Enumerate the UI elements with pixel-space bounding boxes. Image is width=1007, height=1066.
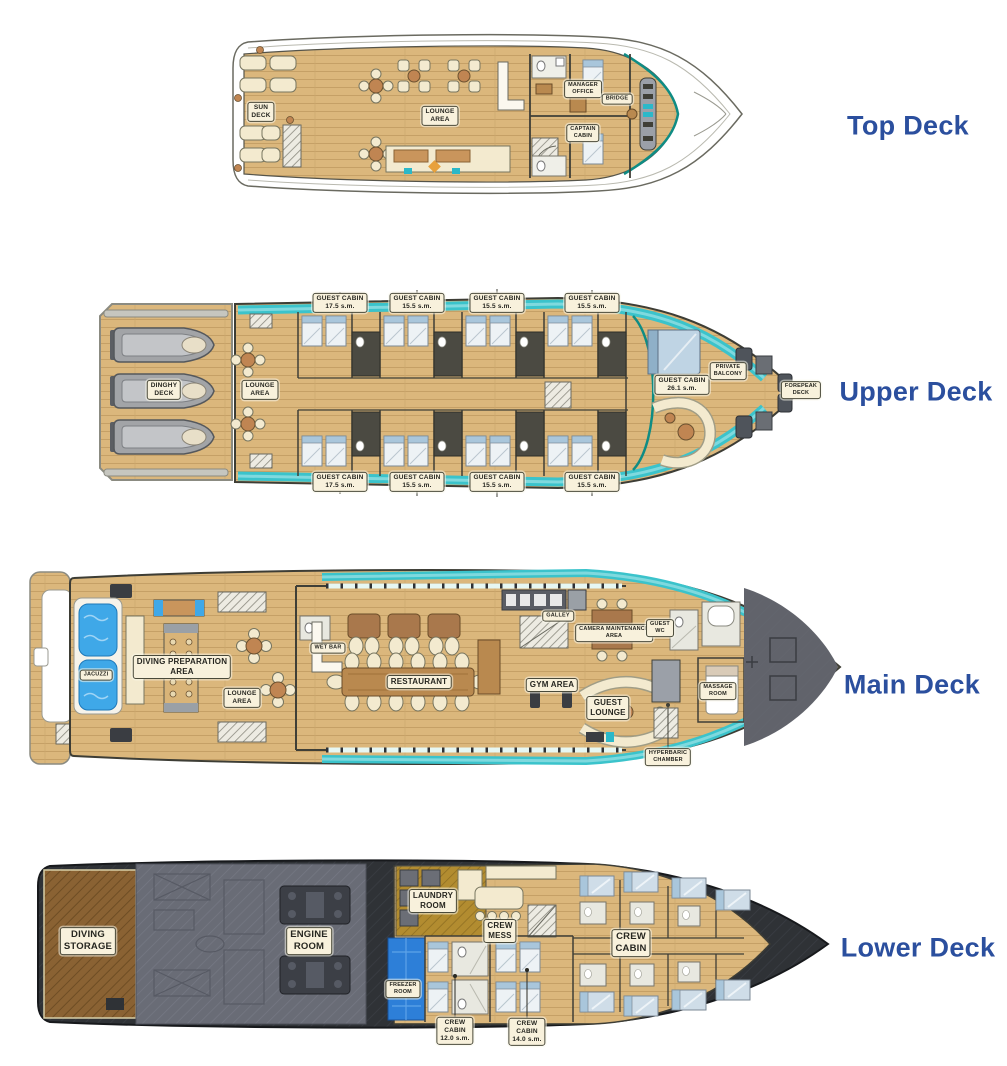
stairs bbox=[283, 125, 301, 167]
foredeck bbox=[744, 588, 838, 746]
deck-name-main: Main Deck bbox=[844, 670, 980, 701]
label-diving-preparation-area: DIVING PREPARATION AREA bbox=[133, 655, 231, 679]
label-crew-cabin: CREW CABIN bbox=[611, 929, 650, 957]
yacht-deck-plans-page: SUN DECK LOUNGE AREA MANAGER OFFICE CAPT… bbox=[0, 0, 1007, 1066]
lower-deck-plan bbox=[38, 860, 828, 1027]
label-captain-cabin: CAPTAIN CABIN bbox=[566, 124, 599, 142]
label-hyperbaric-chamber: HYPERBARIC CHAMBER bbox=[645, 748, 691, 766]
label-restaurant: RESTAURANT bbox=[387, 675, 452, 689]
label-private-balcony: PRIVATE BALCONY bbox=[710, 362, 747, 380]
dinghy bbox=[110, 420, 214, 454]
freezer-room-area bbox=[388, 938, 425, 1020]
label-forepeak-deck: FOREPEAK DECK bbox=[781, 381, 821, 399]
label-camera-maintenance-area: CAMERA MAINTENANCE AREA bbox=[575, 624, 653, 642]
label-main-lounge-area: LOUNGE AREA bbox=[223, 688, 260, 708]
label-bridge: BRIDGE bbox=[602, 94, 633, 105]
label-crew-cabin-12: CREW CABIN 12.0 s.m. bbox=[436, 1017, 473, 1045]
label-freezer-room: FREEZER ROOM bbox=[385, 980, 420, 998]
label-guest-cabin-bottom-3: GUEST CABIN 15.5 s.m. bbox=[470, 472, 525, 492]
deck-plans-drawing bbox=[0, 0, 1007, 1066]
deck-name-top: Top Deck bbox=[847, 111, 969, 142]
label-forward-guest-cabin: GUEST CABIN 26.1 s.m. bbox=[655, 375, 710, 395]
label-diving-storage: DIVING STORAGE bbox=[60, 927, 116, 955]
label-manager-office: MANAGER OFFICE bbox=[564, 80, 602, 98]
label-guest-lounge: GUEST LOUNGE bbox=[586, 696, 629, 720]
engine bbox=[280, 956, 350, 994]
label-massage-room: MASSAGE ROOM bbox=[699, 682, 736, 700]
label-guest-cabin-bottom-2: GUEST CABIN 15.5 s.m. bbox=[390, 472, 445, 492]
label-guest-cabin-top-4: GUEST CABIN 15.5 s.m. bbox=[565, 293, 620, 313]
label-galley: GALLEY bbox=[542, 611, 574, 622]
label-crew-mess: CREW MESS bbox=[483, 919, 516, 943]
deck-name-lower: Lower Deck bbox=[841, 933, 996, 964]
label-guest-cabin-top-2: GUEST CABIN 15.5 s.m. bbox=[390, 293, 445, 313]
label-crew-cabin-14: CREW CABIN 14.0 s.m. bbox=[508, 1018, 545, 1046]
engine bbox=[280, 886, 350, 924]
label-laundry-room: LAUNDRY ROOM bbox=[409, 889, 457, 913]
top-deck-plan bbox=[233, 35, 742, 194]
label-upper-lounge-area: LOUNGE AREA bbox=[241, 380, 278, 400]
aft-lounge-sofa bbox=[386, 146, 510, 174]
label-guest-cabin-bottom-4: GUEST CABIN 15.5 s.m. bbox=[565, 472, 620, 492]
dinghy bbox=[110, 328, 214, 362]
label-wet-bar: WET BAR bbox=[310, 643, 345, 654]
label-engine-room: ENGINE ROOM bbox=[286, 927, 332, 955]
label-top-lounge-area: LOUNGE AREA bbox=[421, 106, 458, 126]
label-sun-deck: SUN DECK bbox=[247, 102, 274, 122]
hyperbaric-chamber-box bbox=[652, 660, 680, 702]
label-guest-cabin-bottom-1: GUEST CABIN 17.5 s.m. bbox=[313, 472, 368, 492]
label-jacuzzi: JACUZZI bbox=[80, 670, 113, 681]
label-gym-area: GYM AREA bbox=[526, 678, 578, 692]
label-guest-wc: GUEST WC bbox=[646, 619, 674, 637]
label-dinghy-deck: DINGHY DECK bbox=[147, 380, 181, 400]
label-guest-cabin-top-3: GUEST CABIN 15.5 s.m. bbox=[470, 293, 525, 313]
deck-name-upper: Upper Deck bbox=[839, 377, 992, 408]
label-guest-cabin-top-1: GUEST CABIN 17.5 s.m. bbox=[313, 293, 368, 313]
